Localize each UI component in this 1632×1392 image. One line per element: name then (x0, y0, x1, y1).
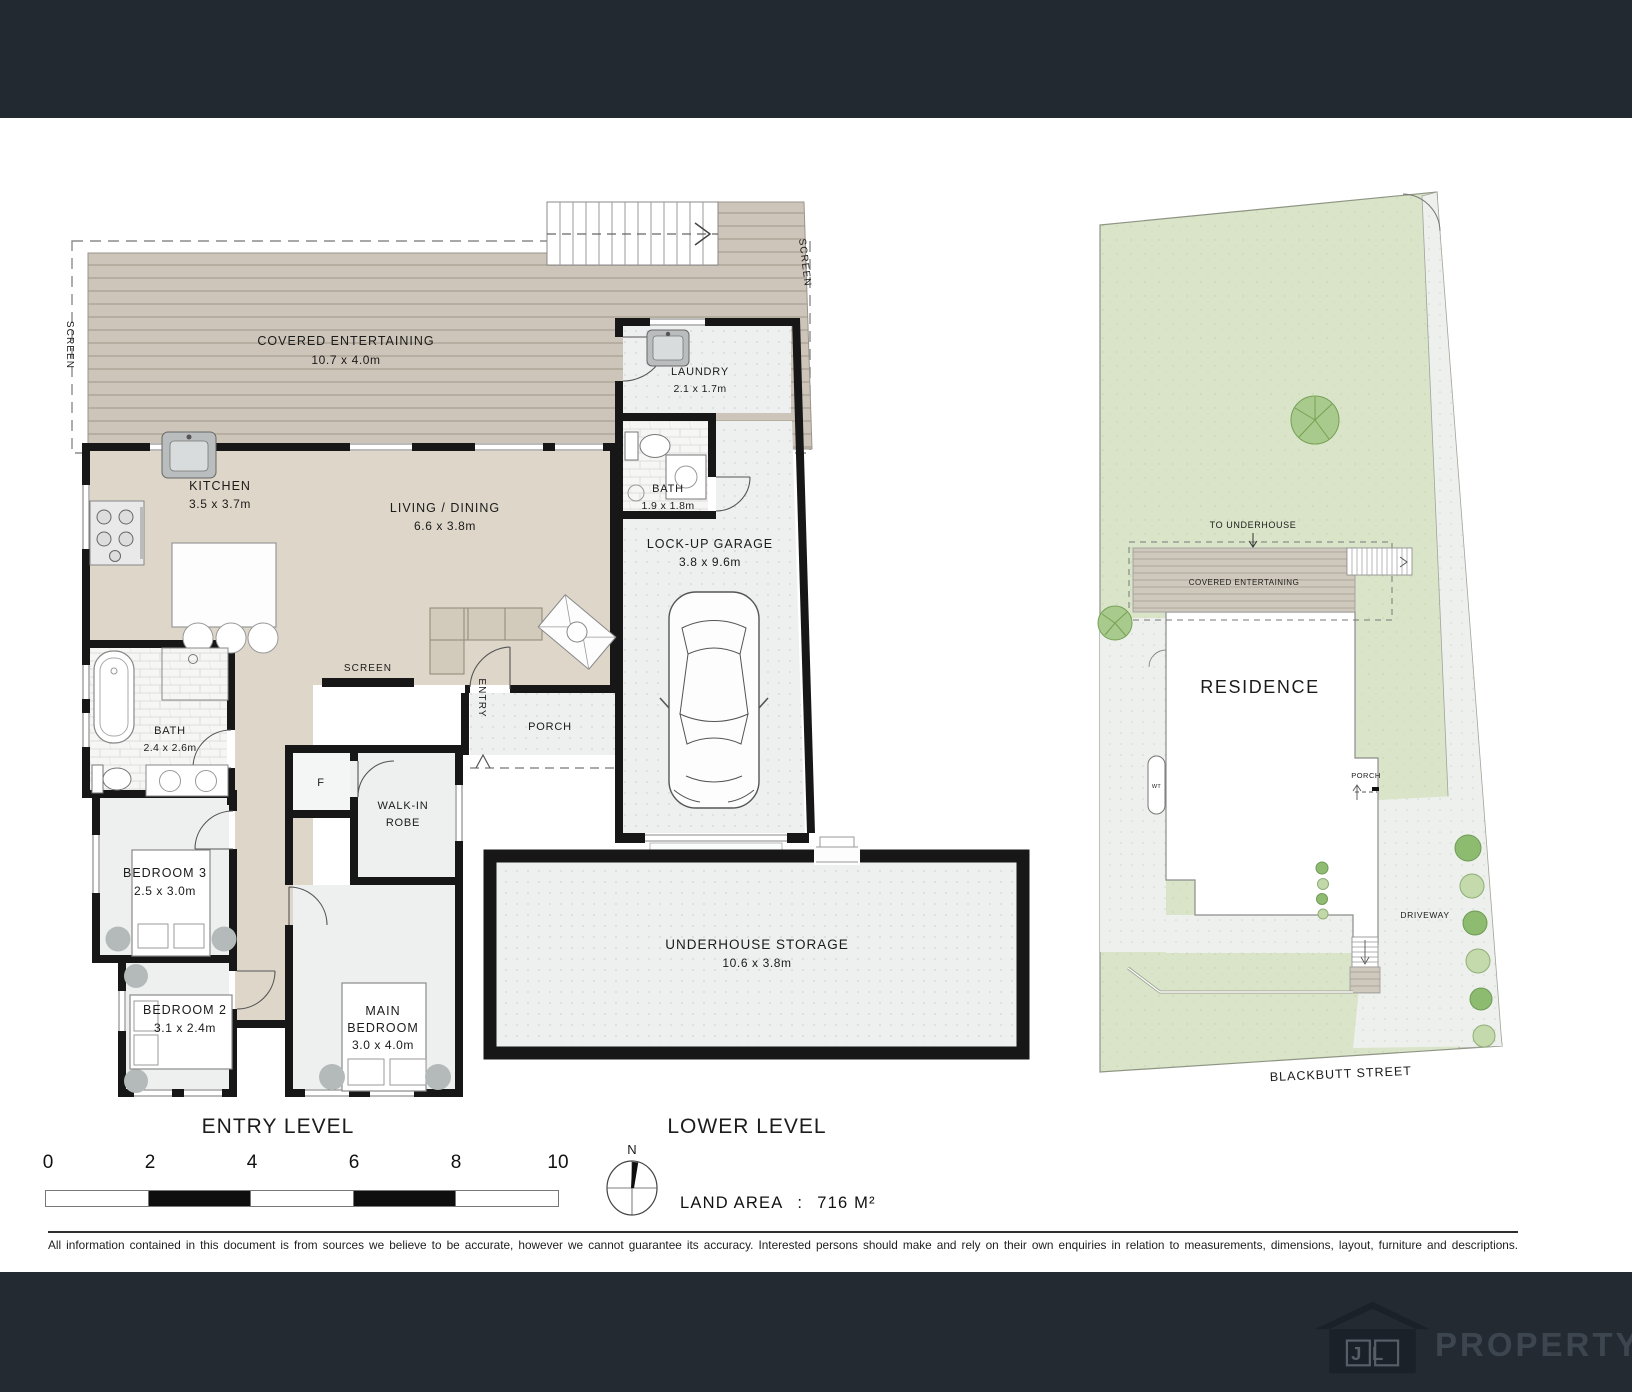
scale-segment (354, 1191, 457, 1206)
shrub-icon (1316, 862, 1328, 874)
entry-arrow-icon (476, 755, 490, 768)
scale-tick: 6 (349, 1152, 360, 1174)
kitchen-sink (162, 432, 216, 478)
label-to-underhouse: TO UNDERHOUSE (1210, 520, 1297, 530)
stove (90, 501, 144, 565)
site-plan: TO UNDERHOUSE COVERED ENTERTAINING RESID… (1085, 180, 1515, 1085)
label-living-dining: LIVING / DINING (390, 501, 500, 515)
label-bath-top: BATH (652, 483, 684, 495)
dims-covered-entertaining: 10.7 x 4.0m (311, 353, 380, 367)
scale-tick: 0 (43, 1152, 54, 1174)
scale-segment (456, 1191, 558, 1206)
land-area: LAND AREA : 716 M² (680, 1194, 876, 1213)
label-garage: LOCK-UP GARAGE (647, 537, 773, 551)
scale-segment (46, 1191, 149, 1206)
label-porch: PORCH (528, 721, 572, 733)
tree-icon (1455, 835, 1481, 861)
shrub-icon (1318, 909, 1328, 919)
deck-stairs (547, 202, 718, 265)
label-screen-mid: SCREEN (344, 663, 392, 674)
dims-main-bedroom: 3.0 x 4.0m (352, 1038, 414, 1052)
label-laundry: LAUNDRY (671, 366, 729, 378)
car (660, 592, 768, 808)
dims-laundry: 2.1 x 1.7m (673, 383, 726, 395)
label-bath-left: BATH (154, 725, 186, 737)
storage-door-landing (820, 837, 854, 847)
dims-bath-top: 1.9 x 1.8m (641, 500, 694, 512)
label-site-porch: PORCH (1351, 771, 1381, 780)
scale-segment (149, 1191, 252, 1206)
dims-underhouse-storage: 10.6 x 3.8m (722, 956, 791, 970)
shrub-icon (1318, 879, 1329, 890)
dims-kitchen: 3.5 x 3.7m (189, 497, 251, 511)
label-entry: ENTRY (476, 678, 487, 717)
label-bedroom3: BEDROOM 3 (123, 866, 207, 880)
scale-tick: 10 (547, 1152, 568, 1174)
scale-tick: 2 (145, 1152, 156, 1174)
top-bar (0, 0, 1632, 118)
scale-tick: 4 (247, 1152, 258, 1174)
label-main-bedroom-1: MAIN (365, 1004, 400, 1018)
label-screen-left: SCREEN (64, 321, 75, 369)
brand-name: PROPERTY (1435, 1326, 1632, 1364)
tree-icon (1291, 396, 1339, 444)
label-residence: RESIDENCE (1200, 677, 1319, 697)
label-street: BLACKBUTT STREET (1269, 1064, 1412, 1084)
dims-garage: 3.8 x 9.6m (679, 555, 741, 569)
brand-logo-house-icon: JL (1315, 1300, 1430, 1375)
tree-icon (1463, 911, 1487, 935)
label-wir-2: ROBE (386, 817, 420, 829)
land-area-label: LAND AREA (680, 1194, 783, 1213)
lower-level-title: LOWER LEVEL (617, 1115, 877, 1139)
divider-line (48, 1231, 1518, 1233)
label-underhouse-storage: UNDERHOUSE STORAGE (665, 937, 849, 952)
land-area-value: 716 M² (817, 1194, 876, 1213)
scale-segment (251, 1191, 354, 1206)
land-area-colon: : (797, 1194, 803, 1213)
laundry-sink (647, 330, 689, 366)
label-main-bedroom-2: BEDROOM (347, 1021, 419, 1035)
tree-icon (1473, 1025, 1495, 1047)
compass-icon: N (598, 1138, 668, 1220)
scale-bar-strip (45, 1190, 559, 1207)
label-covered-entertaining: COVERED ENTERTAINING (257, 334, 434, 348)
label-water-tank: WT (1152, 784, 1161, 790)
dims-bedroom3: 2.5 x 3.0m (134, 884, 196, 898)
label-driveway: DRIVEWAY (1400, 910, 1449, 920)
floor-plan-lower-level: UNDERHOUSE STORAGE 10.6 x 3.8m (470, 835, 1050, 1080)
scale-bar: 0 2 4 6 8 10 (45, 1152, 557, 1208)
entry-level-title: ENTRY LEVEL (148, 1115, 408, 1139)
compass-north-label: N (627, 1142, 636, 1157)
label-site-covered-entertaining: COVERED ENTERTAINING (1189, 578, 1300, 587)
scale-tick: 8 (451, 1152, 462, 1174)
label-fridge: F (317, 777, 325, 789)
floorplan-page: COVERED ENTERTAINING 10.7 x 4.0m SCREEN … (0, 0, 1632, 1392)
label-bedroom2: BEDROOM 2 (143, 1003, 227, 1017)
tree-icon (1098, 606, 1132, 640)
tree-icon (1466, 949, 1490, 973)
porch-threshold (470, 755, 615, 768)
label-kitchen: KITCHEN (189, 479, 251, 493)
dims-bath-left: 2.4 x 2.6m (143, 742, 196, 754)
disclaimer-text: All information contained in this docume… (48, 1238, 1518, 1252)
kitchen-island (172, 543, 278, 653)
rear-path (1166, 915, 1355, 953)
tree-icon (1470, 988, 1492, 1010)
tree-icon (1460, 874, 1484, 898)
brand-initials: JL (1351, 1343, 1394, 1364)
label-wir-1: WALK-IN (377, 800, 428, 812)
shrub-icon (1317, 894, 1328, 905)
dims-bedroom2: 3.1 x 2.4m (154, 1021, 216, 1035)
footer-bar: JL PROPERTY (0, 1272, 1632, 1392)
dims-living-dining: 6.6 x 3.8m (414, 519, 476, 533)
